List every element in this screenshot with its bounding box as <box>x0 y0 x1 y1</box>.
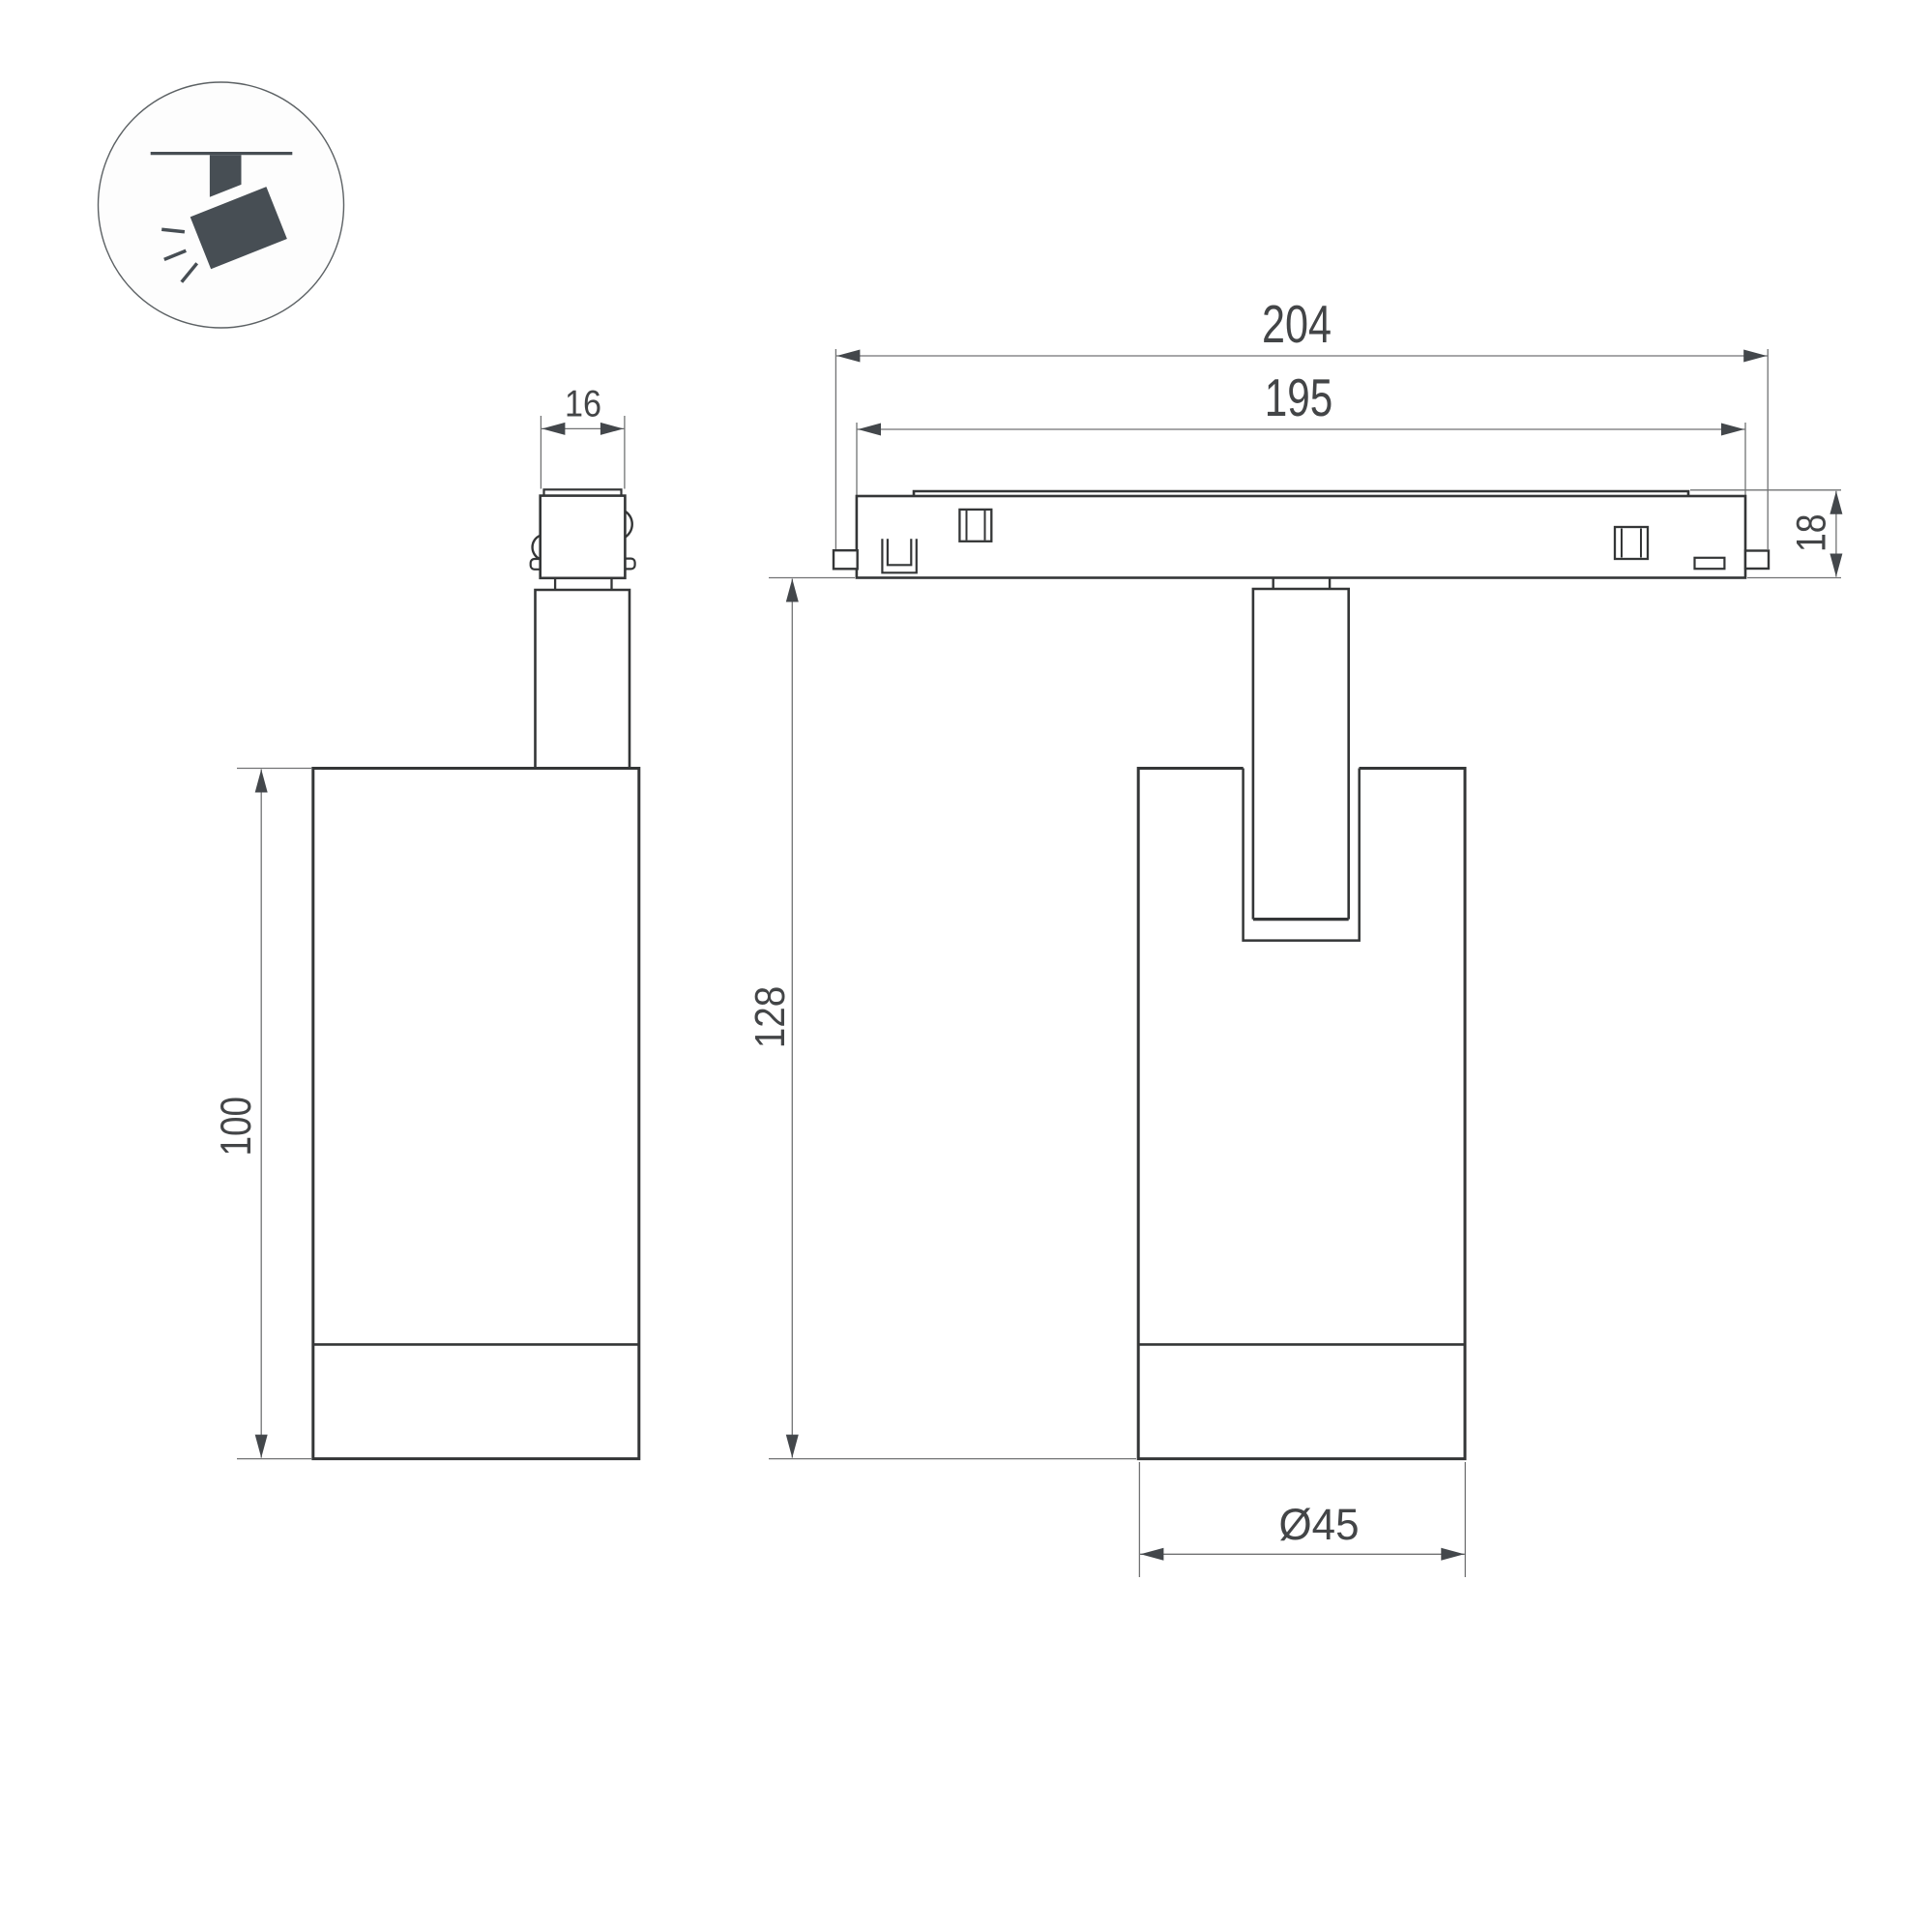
svg-text:128: 128 <box>746 986 794 1049</box>
svg-text:195: 195 <box>1265 367 1333 427</box>
svg-text:18: 18 <box>1788 513 1834 552</box>
svg-text:100: 100 <box>213 1097 260 1156</box>
svg-text:16: 16 <box>565 384 601 425</box>
svg-text:204: 204 <box>1262 295 1332 354</box>
svg-text:Ø45: Ø45 <box>1279 1500 1360 1549</box>
